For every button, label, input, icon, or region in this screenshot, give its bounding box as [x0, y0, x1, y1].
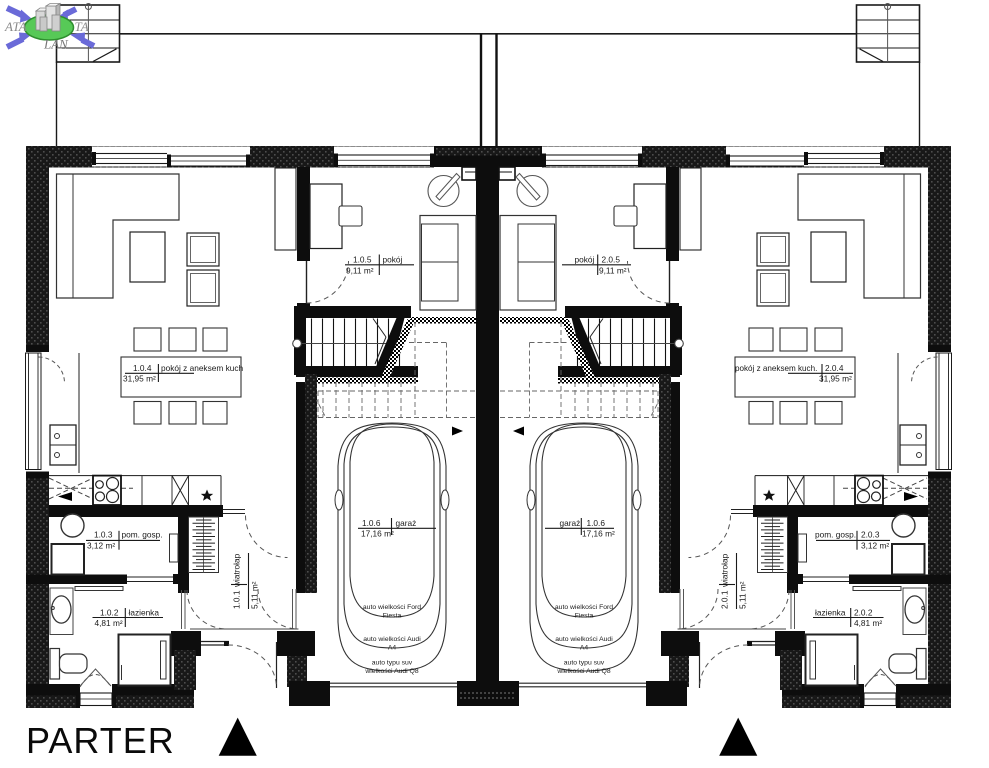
svg-text:pom. gosp.: pom. gosp. — [122, 530, 163, 540]
svg-text:9,11 m²: 9,11 m² — [346, 265, 374, 275]
svg-text:auto typu suv: auto typu suv — [372, 660, 413, 667]
svg-text:pom. gosp.: pom. gosp. — [815, 530, 856, 540]
svg-text:auto typu suv: auto typu suv — [564, 660, 605, 667]
svg-text:1.0.6: 1.0.6 — [362, 518, 381, 528]
svg-text:1.0.5: 1.0.5 — [353, 255, 372, 265]
svg-text:17,16 m²: 17,16 m² — [582, 528, 615, 538]
svg-text:wielkości Audi Q8: wielkości Audi Q8 — [364, 668, 418, 675]
svg-text:5,11 m²: 5,11 m² — [250, 581, 260, 609]
svg-text:2.0.2: 2.0.2 — [854, 608, 873, 618]
svg-text:5,11 m²: 5,11 m² — [738, 581, 748, 609]
svg-text:4,81 m²: 4,81 m² — [95, 618, 123, 628]
svg-text:auto wielkości Audi: auto wielkości Audi — [555, 636, 613, 643]
svg-text:LAN: LAN — [43, 37, 69, 52]
svg-text:1.0.2: 1.0.2 — [100, 608, 119, 618]
svg-text:wiatrołap: wiatrołap — [720, 553, 730, 588]
svg-text:pokój z aneksem kuch: pokój z aneksem kuch — [161, 363, 243, 373]
svg-text:A4: A4 — [388, 645, 397, 652]
svg-text:3,12 m²: 3,12 m² — [861, 541, 889, 551]
svg-text:31,95 m²: 31,95 m² — [819, 374, 852, 384]
svg-text:wielkości Audi Q8: wielkości Audi Q8 — [556, 668, 610, 675]
svg-text:łazienka: łazienka — [815, 608, 846, 618]
svg-text:garaż: garaż — [396, 518, 417, 528]
svg-text:2.0.1: 2.0.1 — [720, 590, 730, 609]
svg-text:garaż: garaż — [560, 518, 581, 528]
svg-text:2.0.3: 2.0.3 — [861, 530, 880, 540]
svg-text:17,16 m²: 17,16 m² — [361, 528, 394, 538]
svg-text:1.0.1: 1.0.1 — [232, 590, 242, 609]
svg-text:auto wielkości Audi: auto wielkości Audi — [363, 636, 421, 643]
svg-text:łazienka: łazienka — [129, 608, 160, 618]
svg-text:auto wielkości Ford: auto wielkości Ford — [555, 604, 613, 611]
svg-text:9,11 m²: 9,11 m² — [599, 265, 627, 275]
svg-text:1.0.6: 1.0.6 — [587, 518, 606, 528]
svg-text:pokój z aneksem kuch.: pokój z aneksem kuch. — [735, 364, 817, 373]
svg-text:4,81 m²: 4,81 m² — [854, 618, 882, 628]
svg-text:1.0.3: 1.0.3 — [94, 530, 113, 540]
svg-text:wiatrołap: wiatrołap — [232, 553, 242, 588]
svg-text:A4: A4 — [580, 645, 589, 652]
svg-text:pokój: pokój — [383, 255, 403, 265]
svg-text:2.0.4: 2.0.4 — [825, 363, 844, 373]
svg-text:2.0.5: 2.0.5 — [602, 255, 621, 265]
svg-text:pokój: pokój — [575, 255, 595, 265]
svg-text:ATA: ATA — [4, 19, 27, 34]
svg-text:TA: TA — [75, 19, 89, 34]
svg-text:Fiesta: Fiesta — [383, 613, 402, 620]
svg-text:3,12 m²: 3,12 m² — [87, 541, 115, 551]
svg-text:31,95 m²: 31,95 m² — [123, 374, 156, 384]
svg-text:PARTER: PARTER — [26, 720, 175, 761]
svg-text:1.0.4: 1.0.4 — [133, 363, 152, 373]
svg-text:auto wielkości Ford: auto wielkości Ford — [363, 604, 421, 611]
svg-text:Fiesta: Fiesta — [575, 613, 594, 620]
